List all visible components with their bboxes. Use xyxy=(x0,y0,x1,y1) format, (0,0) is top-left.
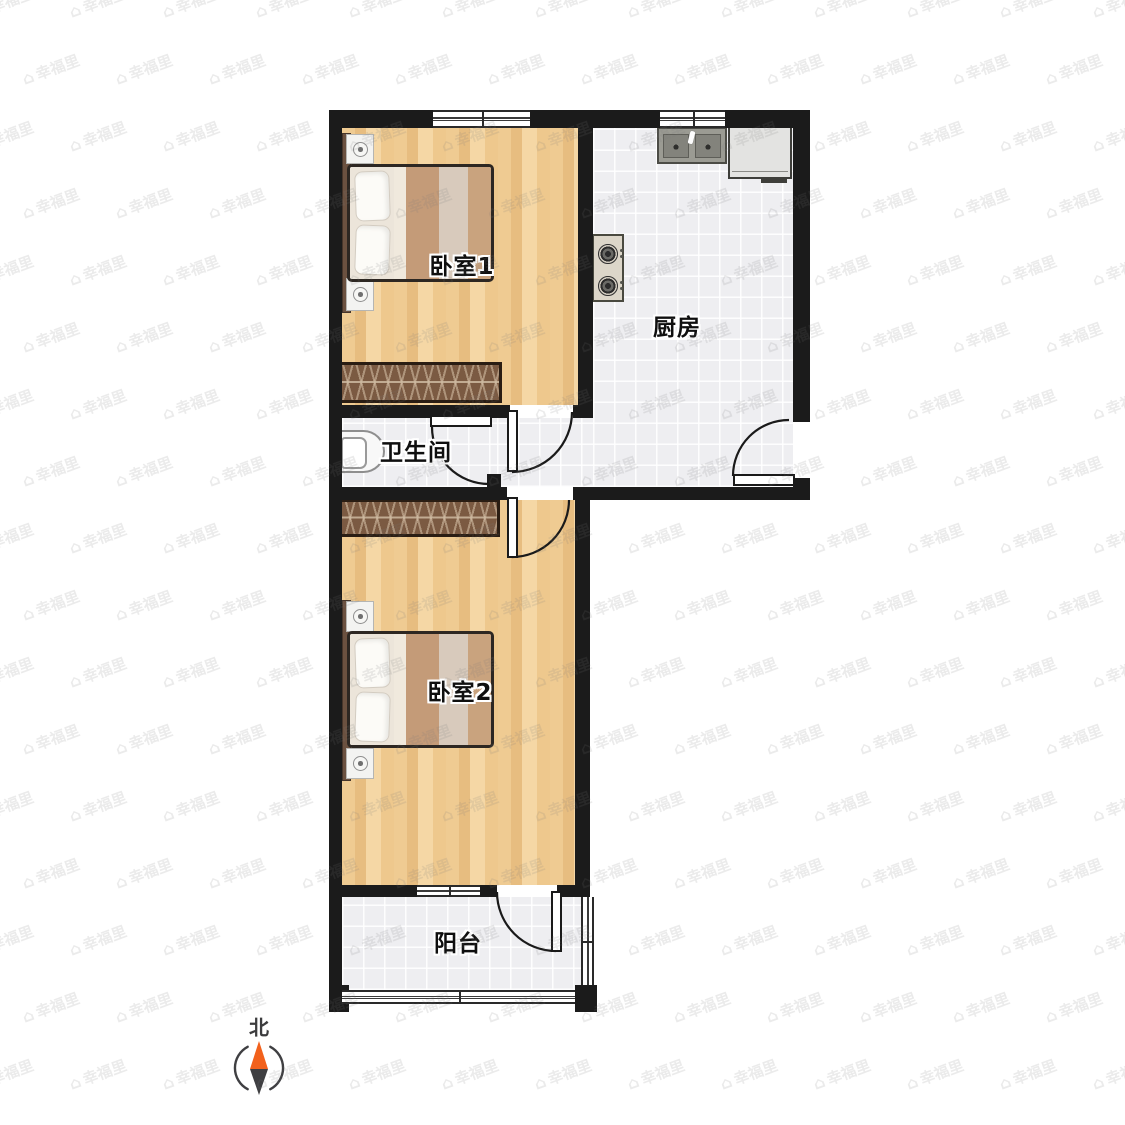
watermark-item: ⌂幸福里 xyxy=(1042,451,1105,491)
watermark-item: ⌂幸福里 xyxy=(903,384,966,424)
watermark-item: ⌂幸福里 xyxy=(670,585,733,625)
watermark-item: ⌂幸福里 xyxy=(345,1054,408,1094)
watermark-item: ⌂幸福里 xyxy=(949,1121,1012,1125)
watermark-item: ⌂幸福里 xyxy=(670,1121,733,1125)
house-icon: ⌂ xyxy=(253,402,270,424)
fridge-cabinet xyxy=(728,126,792,179)
watermark-item: ⌂幸福里 xyxy=(903,250,966,290)
watermark-item: ⌂幸福里 xyxy=(1042,49,1105,89)
watermark-item: ⌂幸福里 xyxy=(1042,719,1105,759)
bathroom-door xyxy=(430,415,492,427)
watermark-item: ⌂幸福里 xyxy=(391,49,454,89)
house-icon: ⌂ xyxy=(532,0,549,22)
house-icon: ⌂ xyxy=(299,469,316,491)
house-icon: ⌂ xyxy=(206,469,223,491)
toilet xyxy=(338,430,385,473)
sink-basin-left xyxy=(663,134,689,158)
house-icon: ⌂ xyxy=(20,1005,37,1027)
house-icon: ⌂ xyxy=(718,670,735,692)
watermark-item: ⌂幸福里 xyxy=(810,786,873,826)
watermark-item: ⌂幸福里 xyxy=(624,920,687,960)
watermark-item: ⌂幸福里 xyxy=(996,920,1059,960)
balcony-bottom-window xyxy=(342,990,575,1004)
bedroom1-label: 卧室1 xyxy=(429,247,494,281)
watermark-item: ⌂幸福里 xyxy=(112,183,175,223)
house-icon: ⌂ xyxy=(160,268,177,290)
watermark-item: ⌂幸福里 xyxy=(624,518,687,558)
watermark-item: ⌂幸福里 xyxy=(205,853,268,893)
watermark-item: ⌂幸福里 xyxy=(1042,853,1105,893)
watermark-item: ⌂幸福里 xyxy=(856,451,919,491)
house-icon: ⌂ xyxy=(671,67,688,89)
watermark-item: ⌂幸福里 xyxy=(66,116,129,156)
pillow xyxy=(354,691,391,742)
watermark-item: ⌂幸福里 xyxy=(112,987,175,1027)
house-icon: ⌂ xyxy=(578,67,595,89)
house-icon: ⌂ xyxy=(20,201,37,223)
watermark-item: ⌂幸福里 xyxy=(252,920,315,960)
watermark-item: ⌂幸福里 xyxy=(1042,1121,1105,1125)
watermark-item: ⌂幸福里 xyxy=(717,786,780,826)
watermark-item: ⌂幸福里 xyxy=(205,183,268,223)
house-icon: ⌂ xyxy=(253,804,270,826)
watermark-item: ⌂幸福里 xyxy=(763,719,826,759)
watermark-item: ⌂幸福里 xyxy=(66,250,129,290)
watermark-item: ⌂幸福里 xyxy=(252,250,315,290)
house-icon: ⌂ xyxy=(253,670,270,692)
house-icon: ⌂ xyxy=(299,67,316,89)
house-icon: ⌂ xyxy=(857,603,874,625)
house-icon: ⌂ xyxy=(253,938,270,960)
watermark-item: ⌂幸福里 xyxy=(112,719,175,759)
house-icon: ⌂ xyxy=(113,603,130,625)
watermark-item: ⌂幸福里 xyxy=(996,250,1059,290)
watermark-item: ⌂幸福里 xyxy=(484,49,547,89)
house-icon: ⌂ xyxy=(1090,134,1107,156)
house-icon: ⌂ xyxy=(160,938,177,960)
watermark-item: ⌂幸福里 xyxy=(438,0,501,23)
watermark-item: ⌂幸福里 xyxy=(205,585,268,625)
watermark-item: ⌂幸福里 xyxy=(856,49,919,89)
stove-burner-bottom xyxy=(598,276,618,296)
house-icon: ⌂ xyxy=(206,67,223,89)
house-icon: ⌂ xyxy=(160,804,177,826)
watermark-item: ⌂幸福里 xyxy=(391,1121,454,1125)
watermark-item: ⌂幸福里 xyxy=(856,317,919,357)
watermark-item: ⌂幸福里 xyxy=(1089,250,1125,290)
watermark-item: ⌂幸福里 xyxy=(0,518,36,558)
watermark-item: ⌂幸福里 xyxy=(1089,0,1125,23)
watermark-item: ⌂幸福里 xyxy=(0,116,36,156)
watermark-item: ⌂幸福里 xyxy=(949,451,1012,491)
house-icon: ⌂ xyxy=(253,0,270,22)
pillow xyxy=(354,224,391,275)
watermark-item: ⌂幸福里 xyxy=(996,786,1059,826)
house-icon: ⌂ xyxy=(857,469,874,491)
watermark-item: ⌂幸福里 xyxy=(0,384,36,424)
house-icon: ⌂ xyxy=(997,536,1014,558)
wall-right-upper xyxy=(793,110,810,422)
watermark-item: ⌂幸福里 xyxy=(159,652,222,692)
watermark-item: ⌂幸福里 xyxy=(577,1121,640,1125)
house-icon: ⌂ xyxy=(160,0,177,22)
house-icon: ⌂ xyxy=(764,1005,781,1027)
watermark-item: ⌂幸福里 xyxy=(996,1054,1059,1094)
watermark-item: ⌂幸福里 xyxy=(159,786,222,826)
house-icon: ⌂ xyxy=(671,603,688,625)
house-icon: ⌂ xyxy=(857,871,874,893)
house-icon: ⌂ xyxy=(299,1005,316,1027)
watermark-item: ⌂幸福里 xyxy=(159,920,222,960)
house-icon: ⌂ xyxy=(20,67,37,89)
compass-south-needle xyxy=(250,1069,268,1095)
watermark-item: ⌂幸福里 xyxy=(1042,317,1105,357)
bedroom2-balcony-window xyxy=(417,885,480,897)
house-icon: ⌂ xyxy=(67,938,84,960)
house-icon: ⌂ xyxy=(67,402,84,424)
house-icon: ⌂ xyxy=(811,536,828,558)
house-icon: ⌂ xyxy=(625,804,642,826)
watermark-item: ⌂幸福里 xyxy=(996,518,1059,558)
watermark-item: ⌂幸福里 xyxy=(531,1054,594,1094)
house-icon: ⌂ xyxy=(718,938,735,960)
compass-icon xyxy=(227,1036,293,1098)
house-icon: ⌂ xyxy=(811,1072,828,1094)
watermark-item: ⌂幸福里 xyxy=(19,585,82,625)
watermark-item: ⌂幸福里 xyxy=(19,1121,82,1125)
house-icon: ⌂ xyxy=(299,871,316,893)
watermark-item: ⌂幸福里 xyxy=(66,518,129,558)
house-icon: ⌂ xyxy=(253,536,270,558)
kitchen-label: 厨房 xyxy=(653,308,701,342)
watermark-item: ⌂幸福里 xyxy=(205,317,268,357)
watermark-item: ⌂幸福里 xyxy=(717,652,780,692)
stove-burner-top xyxy=(598,244,618,264)
watermark-item: ⌂幸福里 xyxy=(159,384,222,424)
house-icon: ⌂ xyxy=(67,268,84,290)
house-icon: ⌂ xyxy=(718,0,735,22)
house-icon: ⌂ xyxy=(997,1072,1014,1094)
watermark-item: ⌂幸福里 xyxy=(903,652,966,692)
watermark-item: ⌂幸福里 xyxy=(112,451,175,491)
watermark-item: ⌂幸福里 xyxy=(717,0,780,23)
watermark-item: ⌂幸福里 xyxy=(205,1121,268,1125)
house-icon: ⌂ xyxy=(997,804,1014,826)
house-icon: ⌂ xyxy=(20,335,37,357)
bed2-sheet xyxy=(350,634,394,745)
kitchen-sink xyxy=(657,127,727,164)
watermark-item: ⌂幸福里 xyxy=(252,116,315,156)
watermark-item: ⌂幸福里 xyxy=(624,0,687,23)
watermark-item: ⌂幸福里 xyxy=(0,1054,36,1094)
house-icon: ⌂ xyxy=(1043,67,1060,89)
watermark-item: ⌂幸福里 xyxy=(810,518,873,558)
house-icon: ⌂ xyxy=(764,737,781,759)
house-icon: ⌂ xyxy=(997,134,1014,156)
watermark-item: ⌂幸福里 xyxy=(810,384,873,424)
watermark-item: ⌂幸福里 xyxy=(484,1121,547,1125)
watermark-item: ⌂幸福里 xyxy=(763,1121,826,1125)
watermark-item: ⌂幸福里 xyxy=(717,920,780,960)
house-icon: ⌂ xyxy=(950,335,967,357)
house-icon: ⌂ xyxy=(253,268,270,290)
gas-stove xyxy=(592,234,624,302)
house-icon: ⌂ xyxy=(950,603,967,625)
watermark-item: ⌂幸福里 xyxy=(159,0,222,23)
watermark-item: ⌂幸福里 xyxy=(1042,585,1105,625)
house-icon: ⌂ xyxy=(718,1072,735,1094)
watermark-item: ⌂幸福里 xyxy=(856,585,919,625)
wall-middle-left xyxy=(329,487,507,500)
house-icon: ⌂ xyxy=(1090,268,1107,290)
watermark-item: ⌂幸福里 xyxy=(66,1054,129,1094)
watermark-item: ⌂幸福里 xyxy=(949,719,1012,759)
watermark-item: ⌂幸福里 xyxy=(159,518,222,558)
house-icon: ⌂ xyxy=(950,871,967,893)
watermark-item: ⌂幸福里 xyxy=(949,853,1012,893)
house-icon: ⌂ xyxy=(857,737,874,759)
house-icon: ⌂ xyxy=(997,0,1014,22)
house-icon: ⌂ xyxy=(1090,1072,1107,1094)
house-icon: ⌂ xyxy=(113,1005,130,1027)
house-icon: ⌂ xyxy=(904,268,921,290)
floor-plan: 卧室1 厨房 卫生间 卧室2 阳台 北 ⌂幸福里⌂幸福里⌂幸福里⌂幸福里⌂幸福里… xyxy=(0,0,1125,1125)
watermark-item: ⌂幸福里 xyxy=(763,49,826,89)
wall-left-outer xyxy=(329,110,342,1012)
house-icon: ⌂ xyxy=(160,1072,177,1094)
watermark-item: ⌂幸福里 xyxy=(19,317,82,357)
bedroom1-door xyxy=(507,410,518,472)
house-icon: ⌂ xyxy=(299,335,316,357)
watermark-item: ⌂幸福里 xyxy=(810,1054,873,1094)
watermark-item: ⌂幸福里 xyxy=(112,853,175,893)
watermark-item: ⌂幸福里 xyxy=(66,652,129,692)
house-icon: ⌂ xyxy=(1090,402,1107,424)
balcony-door xyxy=(551,891,562,952)
watermark-item: ⌂幸福里 xyxy=(205,49,268,89)
watermark-item: ⌂幸福里 xyxy=(112,317,175,357)
kitchen-window xyxy=(660,110,725,128)
house-icon: ⌂ xyxy=(485,67,502,89)
wall-top-outer xyxy=(329,110,810,128)
watermark-item: ⌂幸福里 xyxy=(19,719,82,759)
watermark-item: ⌂幸福里 xyxy=(810,920,873,960)
watermark-item: ⌂幸福里 xyxy=(438,1054,501,1094)
house-icon: ⌂ xyxy=(997,938,1014,960)
wall-bathroom-right-stub xyxy=(487,474,501,487)
house-icon: ⌂ xyxy=(346,1072,363,1094)
house-icon: ⌂ xyxy=(811,0,828,22)
compass-north-needle xyxy=(250,1041,268,1069)
bedroom2-wardrobe xyxy=(337,499,500,537)
house-icon: ⌂ xyxy=(113,469,130,491)
house-icon: ⌂ xyxy=(206,1005,223,1027)
watermark-item: ⌂幸福里 xyxy=(1089,1054,1125,1094)
wall-bedroom2-bottom-b xyxy=(480,885,497,897)
watermark-item: ⌂幸福里 xyxy=(298,1121,361,1125)
house-icon: ⌂ xyxy=(67,1072,84,1094)
house-icon: ⌂ xyxy=(625,670,642,692)
house-icon: ⌂ xyxy=(67,536,84,558)
house-icon: ⌂ xyxy=(67,134,84,156)
house-icon: ⌂ xyxy=(160,402,177,424)
house-icon: ⌂ xyxy=(950,1005,967,1027)
house-icon: ⌂ xyxy=(206,201,223,223)
house-icon: ⌂ xyxy=(67,0,84,22)
watermark-item: ⌂幸福里 xyxy=(0,250,36,290)
watermark-item: ⌂幸福里 xyxy=(0,786,36,826)
house-icon: ⌂ xyxy=(625,0,642,22)
watermark-item: ⌂幸福里 xyxy=(1089,384,1125,424)
watermark-item: ⌂幸福里 xyxy=(903,518,966,558)
watermark-item: ⌂幸福里 xyxy=(763,853,826,893)
watermark-item: ⌂幸福里 xyxy=(670,987,733,1027)
watermark-item: ⌂幸福里 xyxy=(670,49,733,89)
house-icon: ⌂ xyxy=(206,335,223,357)
house-icon: ⌂ xyxy=(1043,1005,1060,1027)
watermark-item: ⌂幸福里 xyxy=(1089,518,1125,558)
house-icon: ⌂ xyxy=(20,871,37,893)
watermark-item: ⌂幸福里 xyxy=(66,0,129,23)
house-icon: ⌂ xyxy=(532,1072,549,1094)
bedroom2-label: 卧室2 xyxy=(427,673,492,707)
watermark-item: ⌂幸福里 xyxy=(0,0,36,23)
house-icon: ⌂ xyxy=(113,335,130,357)
watermark-item: ⌂幸福里 xyxy=(949,183,1012,223)
house-icon: ⌂ xyxy=(904,402,921,424)
house-icon: ⌂ xyxy=(997,402,1014,424)
sink-basin-right xyxy=(695,134,721,158)
house-icon: ⌂ xyxy=(904,938,921,960)
watermark-item: ⌂幸福里 xyxy=(112,49,175,89)
house-icon: ⌂ xyxy=(1043,603,1060,625)
watermark-item: ⌂幸福里 xyxy=(0,920,36,960)
watermark-item: ⌂幸福里 xyxy=(112,1121,175,1125)
house-icon: ⌂ xyxy=(1043,871,1060,893)
house-icon: ⌂ xyxy=(439,0,456,22)
watermark-item: ⌂幸福里 xyxy=(903,116,966,156)
house-icon: ⌂ xyxy=(904,536,921,558)
house-icon: ⌂ xyxy=(811,804,828,826)
house-icon: ⌂ xyxy=(67,670,84,692)
house-icon: ⌂ xyxy=(950,737,967,759)
watermark-item: ⌂幸福里 xyxy=(205,451,268,491)
house-icon: ⌂ xyxy=(764,67,781,89)
watermark-item: ⌂幸福里 xyxy=(298,49,361,89)
watermark-item: ⌂幸福里 xyxy=(996,116,1059,156)
watermark-item: ⌂幸福里 xyxy=(856,719,919,759)
house-icon: ⌂ xyxy=(1090,804,1107,826)
house-icon: ⌂ xyxy=(811,268,828,290)
house-icon: ⌂ xyxy=(206,737,223,759)
watermark-item: ⌂幸福里 xyxy=(903,786,966,826)
watermark-item: ⌂幸福里 xyxy=(19,49,82,89)
wall-bedroom2-right xyxy=(575,500,590,897)
house-icon: ⌂ xyxy=(857,1005,874,1027)
house-icon: ⌂ xyxy=(206,871,223,893)
watermark-item: ⌂幸福里 xyxy=(903,1054,966,1094)
watermark-item: ⌂幸福里 xyxy=(205,719,268,759)
house-icon: ⌂ xyxy=(950,201,967,223)
house-icon: ⌂ xyxy=(67,804,84,826)
watermark-item: ⌂幸福里 xyxy=(949,317,1012,357)
watermark-item: ⌂幸福里 xyxy=(1042,183,1105,223)
house-icon: ⌂ xyxy=(160,670,177,692)
house-icon: ⌂ xyxy=(160,134,177,156)
house-icon: ⌂ xyxy=(20,603,37,625)
house-icon: ⌂ xyxy=(904,0,921,22)
house-icon: ⌂ xyxy=(904,134,921,156)
watermark-item: ⌂幸福里 xyxy=(856,1121,919,1125)
pillow xyxy=(354,170,391,221)
watermark-item: ⌂幸福里 xyxy=(252,0,315,23)
pillow xyxy=(354,637,391,688)
watermark-item: ⌂幸福里 xyxy=(810,652,873,692)
watermark-item: ⌂幸福里 xyxy=(717,1054,780,1094)
watermark-item: ⌂幸福里 xyxy=(345,0,408,23)
house-icon: ⌂ xyxy=(811,938,828,960)
house-icon: ⌂ xyxy=(1090,670,1107,692)
watermark-item: ⌂幸福里 xyxy=(949,49,1012,89)
watermark-item: ⌂幸福里 xyxy=(252,786,315,826)
watermark-item: ⌂幸福里 xyxy=(996,0,1059,23)
watermark-item: ⌂幸福里 xyxy=(856,987,919,1027)
balcony-right-window xyxy=(581,897,594,985)
house-icon: ⌂ xyxy=(811,402,828,424)
watermark-item: ⌂幸福里 xyxy=(252,518,315,558)
house-icon: ⌂ xyxy=(997,268,1014,290)
watermark-item: ⌂幸福里 xyxy=(252,384,315,424)
watermark-item: ⌂幸福里 xyxy=(19,451,82,491)
wall-bedroom2-bottom-a xyxy=(342,885,417,897)
house-icon: ⌂ xyxy=(299,737,316,759)
house-icon: ⌂ xyxy=(718,804,735,826)
house-icon: ⌂ xyxy=(950,469,967,491)
watermark-item: ⌂幸福里 xyxy=(624,1054,687,1094)
house-icon: ⌂ xyxy=(718,536,735,558)
house-icon: ⌂ xyxy=(811,670,828,692)
house-icon: ⌂ xyxy=(950,67,967,89)
bed2-nightstand-top xyxy=(346,601,374,632)
watermark-item: ⌂幸福里 xyxy=(670,719,733,759)
wall-kitchen-left xyxy=(578,128,593,418)
watermark-item: ⌂幸福里 xyxy=(19,987,82,1027)
watermark-item: ⌂幸福里 xyxy=(1089,116,1125,156)
watermark-item: ⌂幸福里 xyxy=(159,1054,222,1094)
entry-door xyxy=(733,474,795,486)
bed1-nightstand-top xyxy=(346,134,374,164)
house-icon: ⌂ xyxy=(206,603,223,625)
watermark-item: ⌂幸福里 xyxy=(763,987,826,1027)
house-icon: ⌂ xyxy=(625,938,642,960)
watermark-item: ⌂幸福里 xyxy=(996,384,1059,424)
watermark-item: ⌂幸福里 xyxy=(112,585,175,625)
bathroom-label: 卫生间 xyxy=(380,433,452,467)
watermark-item: ⌂幸福里 xyxy=(810,116,873,156)
house-icon: ⌂ xyxy=(1090,536,1107,558)
watermark-item: ⌂幸福里 xyxy=(670,853,733,893)
house-icon: ⌂ xyxy=(1043,469,1060,491)
watermark-item: ⌂幸福里 xyxy=(0,652,36,692)
watermark-item: ⌂幸福里 xyxy=(903,920,966,960)
house-icon: ⌂ xyxy=(113,871,130,893)
house-icon: ⌂ xyxy=(904,1072,921,1094)
watermark-item: ⌂幸福里 xyxy=(810,0,873,23)
house-icon: ⌂ xyxy=(857,67,874,89)
house-icon: ⌂ xyxy=(1043,201,1060,223)
house-icon: ⌂ xyxy=(811,134,828,156)
watermark-item: ⌂幸福里 xyxy=(810,250,873,290)
